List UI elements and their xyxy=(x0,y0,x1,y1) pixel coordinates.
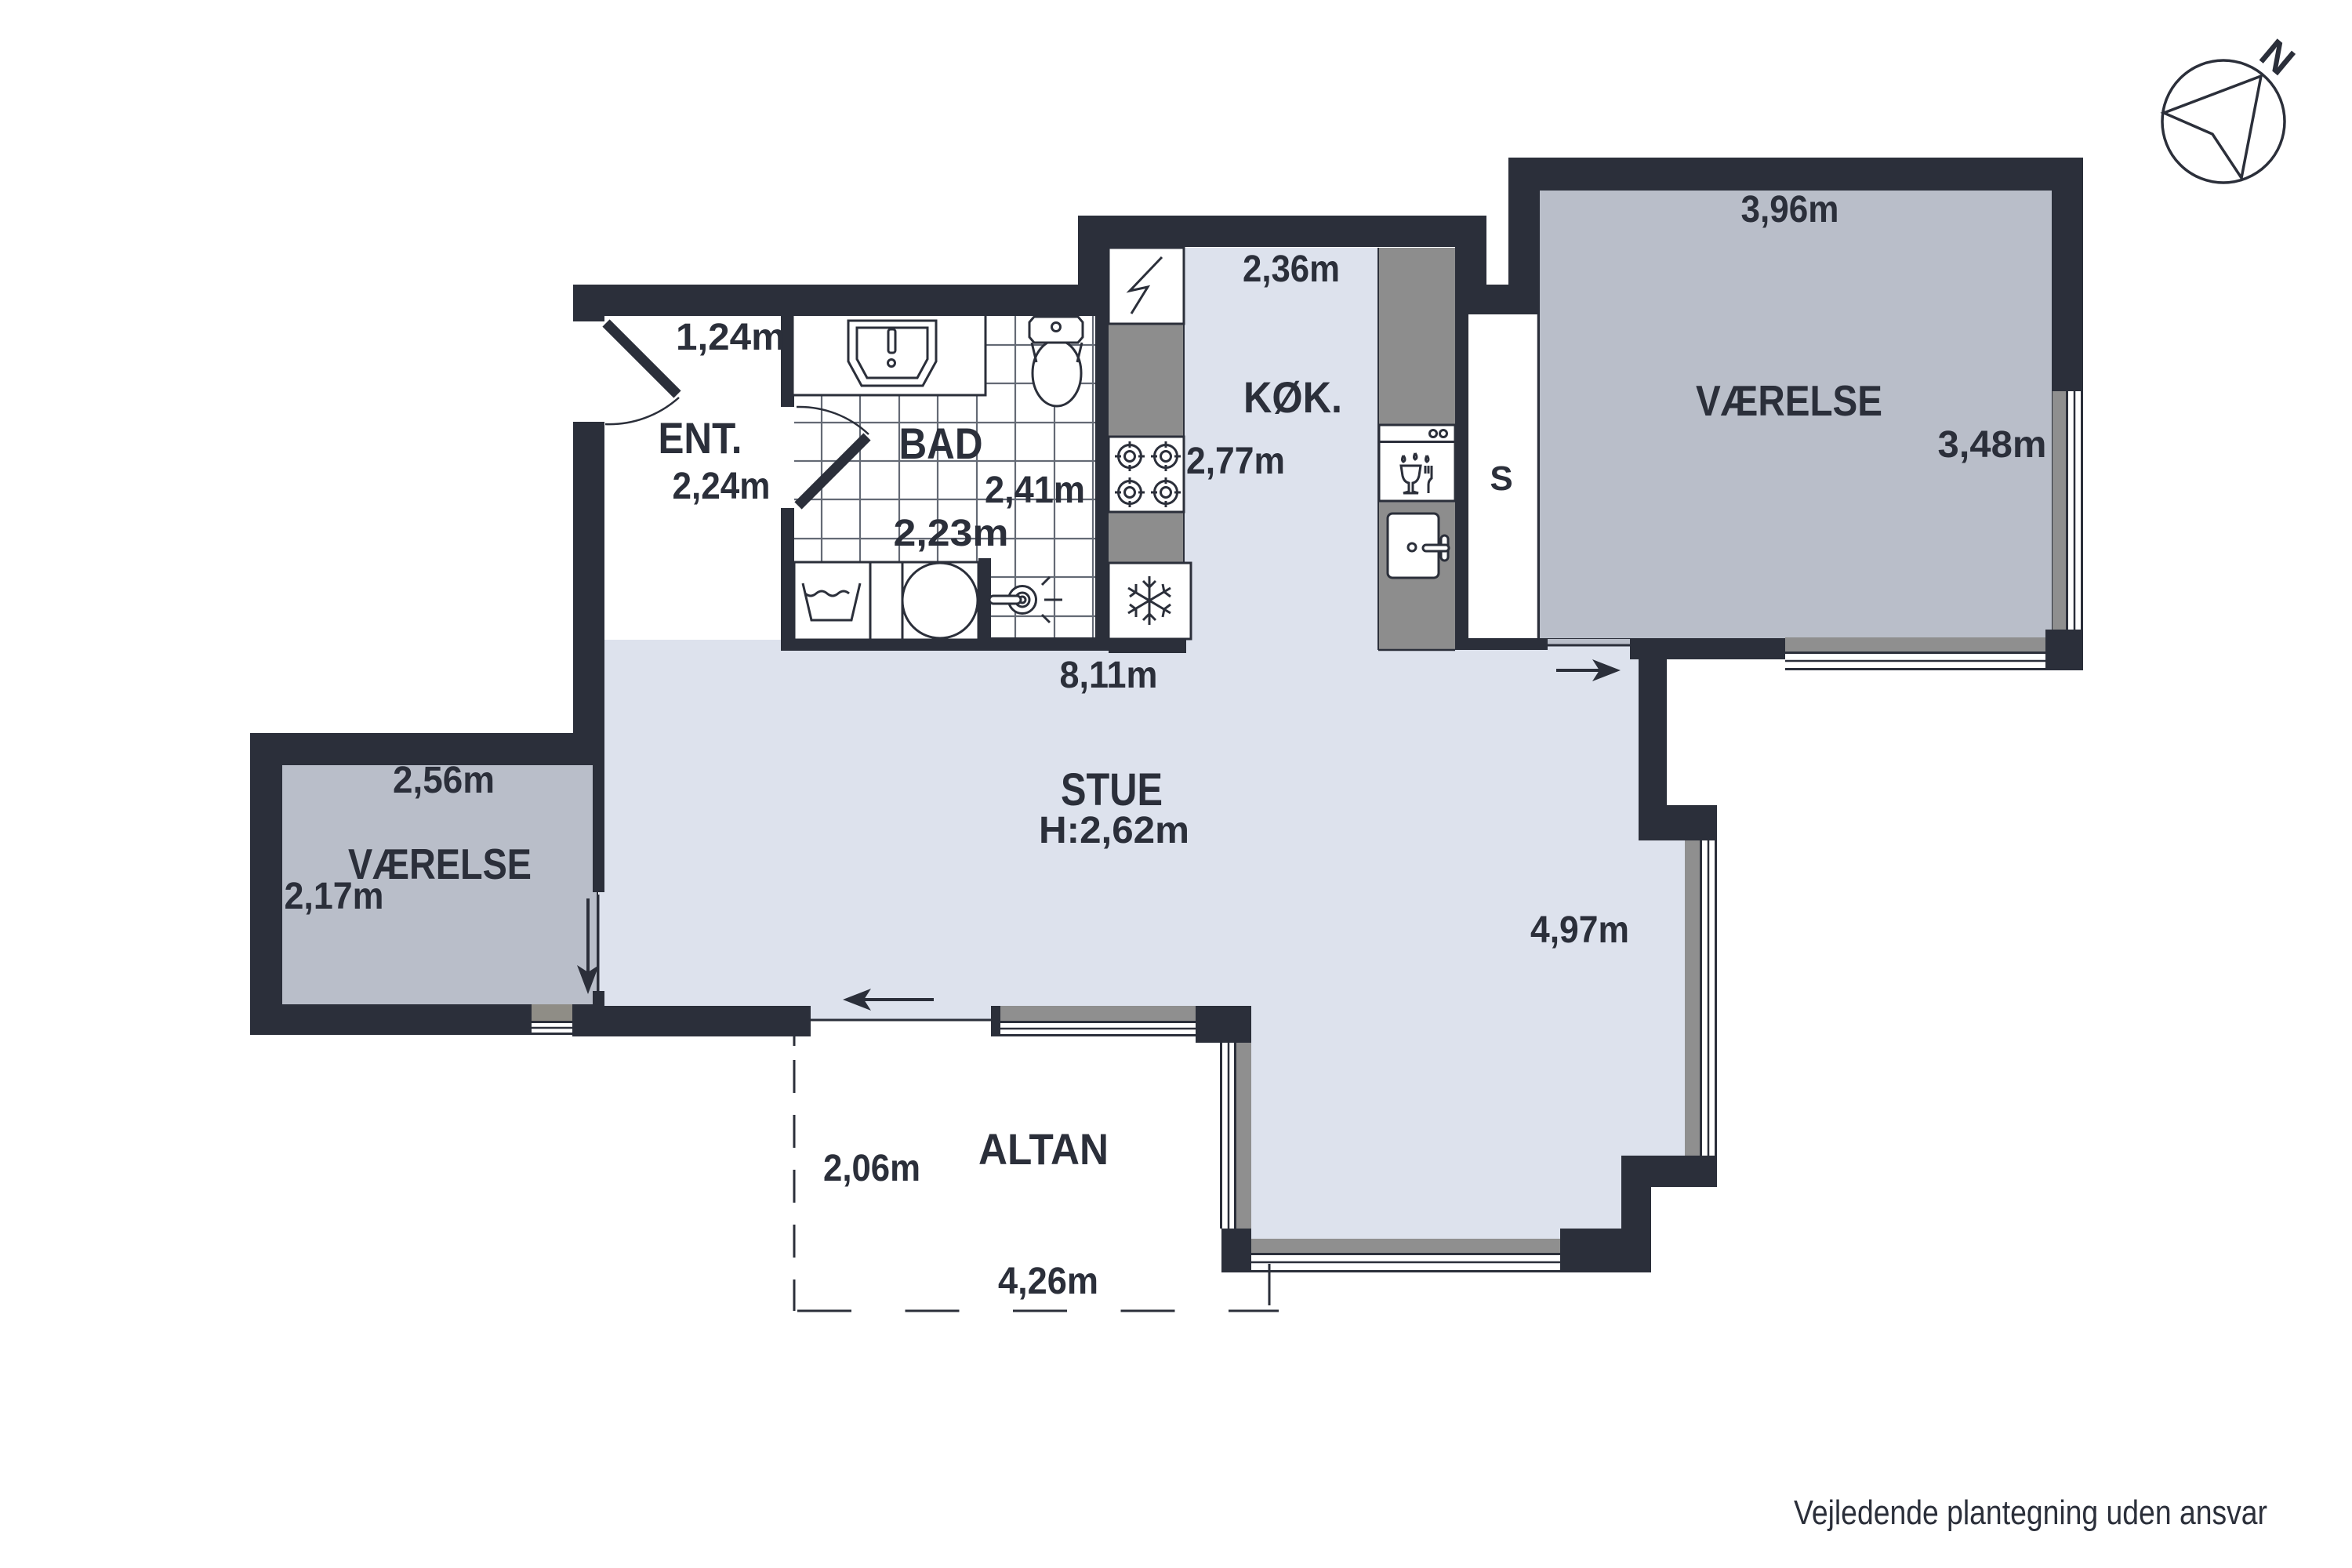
svg-text:H:2,62m: H:2,62m xyxy=(1039,810,1189,851)
svg-text:2,17m: 2,17m xyxy=(285,876,384,917)
svg-text:8,11m: 8,11m xyxy=(1060,655,1158,696)
svg-text:2,41m: 2,41m xyxy=(985,470,1085,511)
svg-text:4,97m: 4,97m xyxy=(1530,909,1629,951)
svg-text:2,77m: 2,77m xyxy=(1186,441,1285,482)
svg-text:ALTAN: ALTAN xyxy=(978,1124,1109,1174)
svg-text:BAD: BAD xyxy=(899,419,983,468)
svg-text:2,56m: 2,56m xyxy=(393,760,495,801)
svg-text:2,23m: 2,23m xyxy=(894,513,1009,554)
svg-text:1,24m: 1,24m xyxy=(676,317,786,358)
svg-text:STUE: STUE xyxy=(1061,764,1163,815)
svg-text:ENT.: ENT. xyxy=(659,413,742,463)
svg-text:KØK.: KØK. xyxy=(1243,372,1342,422)
svg-text:4,26m: 4,26m xyxy=(998,1261,1098,1302)
svg-text:2,36m: 2,36m xyxy=(1243,249,1340,290)
svg-text:3,96m: 3,96m xyxy=(1741,189,1839,230)
svg-text:2,06m: 2,06m xyxy=(823,1148,920,1189)
svg-text:2,24m: 2,24m xyxy=(673,466,771,507)
svg-text:3,48m: 3,48m xyxy=(1938,424,2047,466)
svg-text:S: S xyxy=(1490,459,1512,498)
svg-text:Vejledende plantegning uden an: Vejledende plantegning uden ansvar xyxy=(1794,1494,2267,1532)
svg-text:VÆRELSE: VÆRELSE xyxy=(1696,376,1882,425)
